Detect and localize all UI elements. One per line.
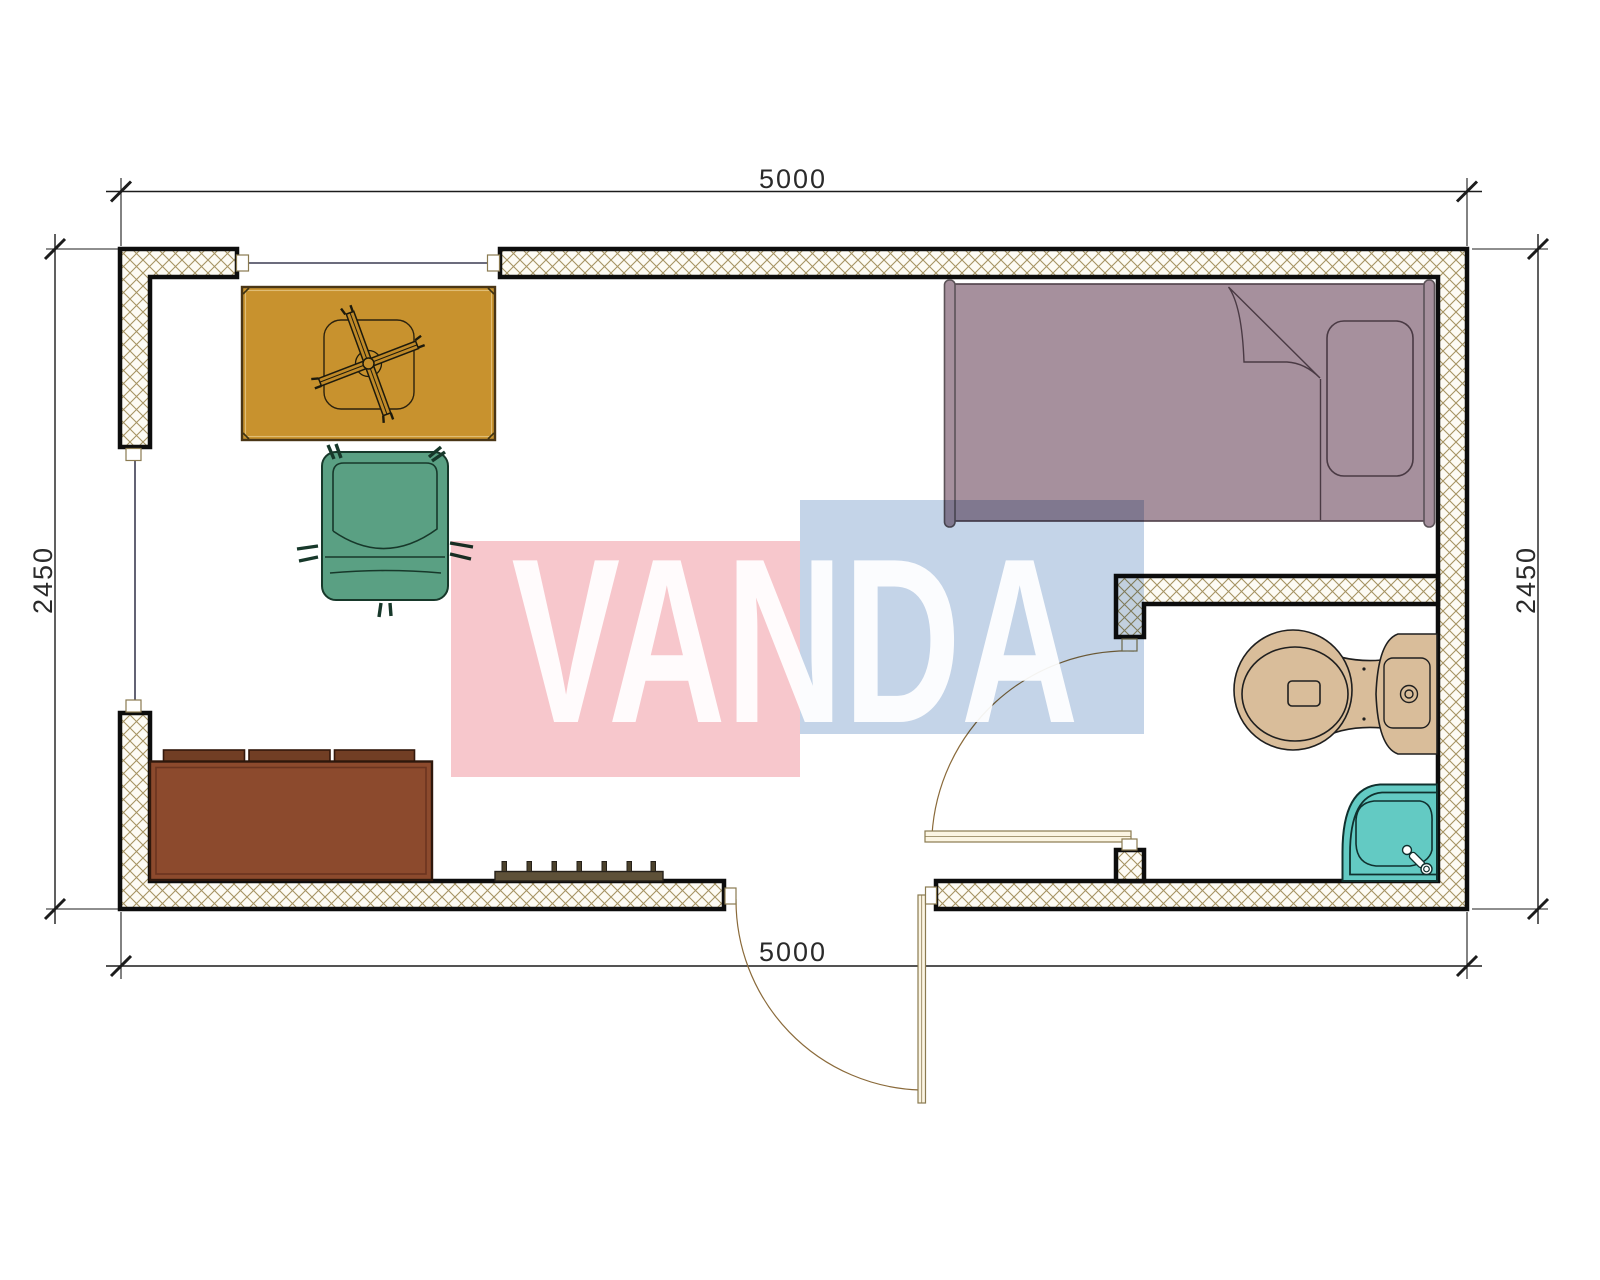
svg-text:5000: 5000 — [759, 937, 827, 967]
svg-text:5000: 5000 — [759, 164, 827, 194]
svg-text:2450: 2450 — [1511, 546, 1541, 614]
svg-text:VANDA: VANDA — [512, 509, 1079, 772]
svg-text:2450: 2450 — [28, 546, 58, 614]
